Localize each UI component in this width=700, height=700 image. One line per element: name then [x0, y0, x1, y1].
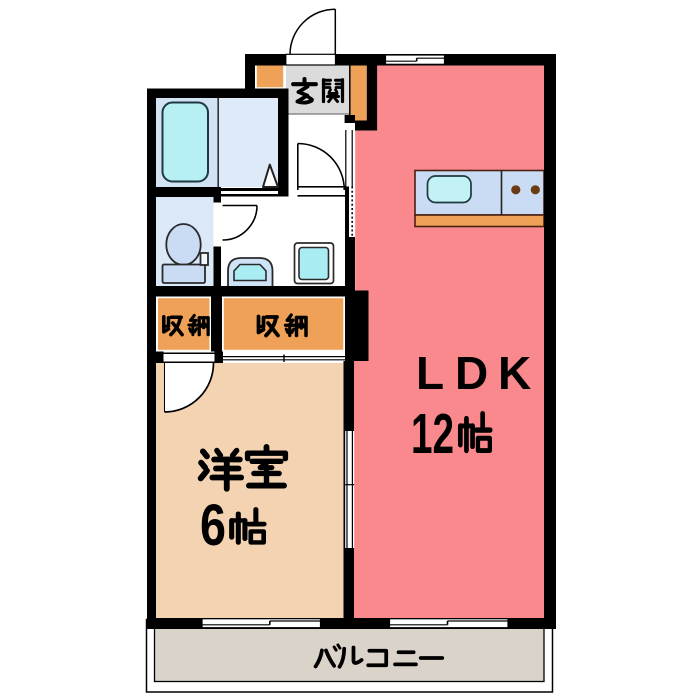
svg-text:6: 6	[200, 493, 226, 558]
svg-text:D: D	[455, 347, 488, 399]
svg-text:L: L	[416, 347, 444, 399]
svg-text:12: 12	[411, 402, 454, 466]
svg-text:K: K	[498, 347, 531, 399]
